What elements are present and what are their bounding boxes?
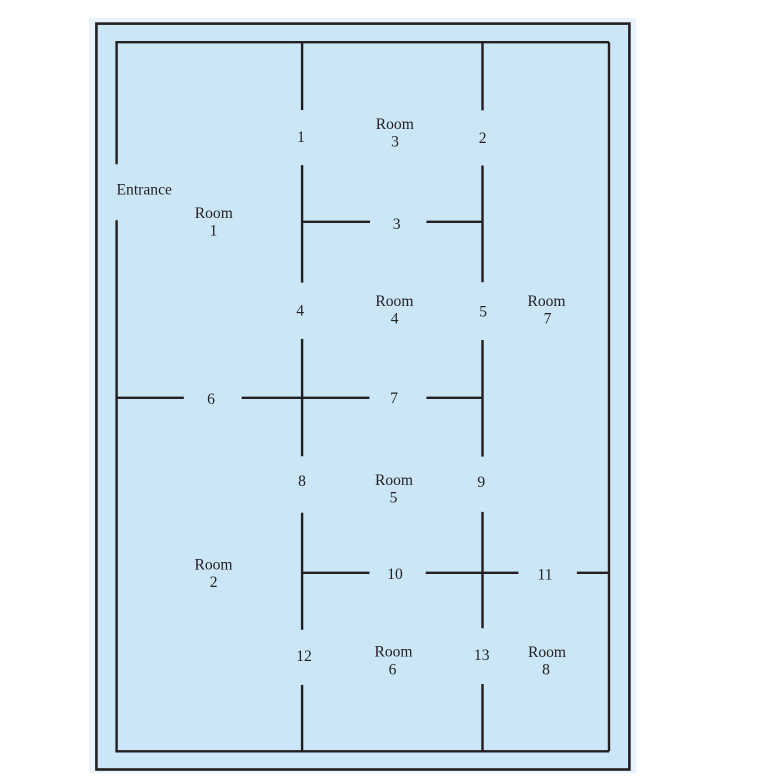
svg-text:Entrance: Entrance — [117, 181, 172, 198]
svg-text:12: 12 — [296, 648, 312, 665]
svg-text:1: 1 — [210, 223, 218, 240]
svg-text:8: 8 — [542, 662, 550, 679]
svg-text:Room: Room — [374, 644, 412, 661]
svg-text:13: 13 — [474, 647, 490, 664]
svg-text:8: 8 — [298, 473, 306, 490]
svg-text:9: 9 — [477, 474, 485, 491]
svg-text:2: 2 — [479, 130, 487, 147]
svg-text:Room: Room — [375, 293, 413, 310]
svg-text:4: 4 — [296, 303, 304, 320]
svg-text:Room: Room — [375, 472, 413, 489]
svg-text:Room: Room — [376, 116, 414, 133]
svg-text:2: 2 — [210, 574, 218, 591]
svg-text:Room: Room — [195, 205, 233, 222]
svg-text:11: 11 — [537, 567, 552, 584]
svg-text:3: 3 — [393, 216, 401, 233]
svg-text:5: 5 — [390, 490, 398, 507]
svg-text:Room: Room — [527, 293, 565, 310]
svg-text:6: 6 — [207, 391, 215, 408]
svg-text:4: 4 — [391, 311, 399, 328]
svg-text:1: 1 — [297, 129, 305, 146]
svg-text:6: 6 — [389, 661, 397, 678]
svg-text:7: 7 — [390, 390, 398, 407]
svg-text:Room: Room — [194, 556, 232, 573]
svg-text:Room: Room — [528, 644, 566, 661]
svg-text:7: 7 — [544, 311, 552, 328]
svg-text:5: 5 — [479, 304, 487, 321]
svg-text:10: 10 — [387, 566, 403, 583]
svg-text:3: 3 — [391, 134, 399, 151]
